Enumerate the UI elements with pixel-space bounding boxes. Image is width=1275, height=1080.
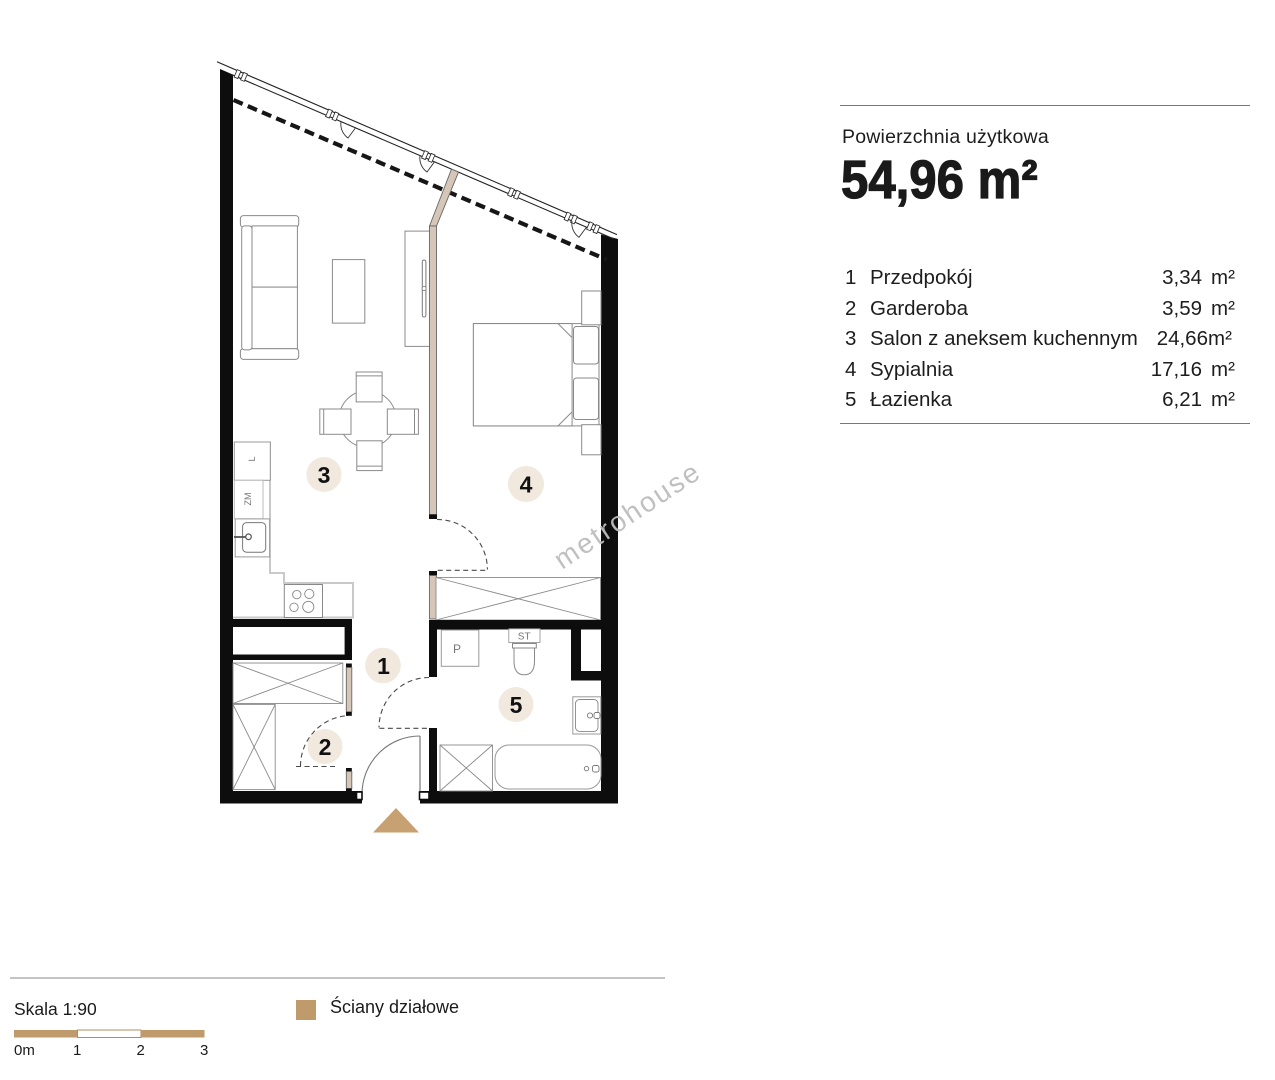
svg-text:ST: ST [518,631,531,642]
svg-text:ZM: ZM [243,493,253,506]
svg-text:1: 1 [377,653,390,679]
svg-text:5: 5 [510,692,523,718]
svg-text:2: 2 [319,734,332,760]
svg-text:3: 3 [318,462,331,488]
svg-text:L: L [247,456,257,461]
svg-text:metrohouse: metrohouse [548,455,707,575]
svg-text:4: 4 [520,471,533,497]
svg-text:P: P [453,642,461,656]
